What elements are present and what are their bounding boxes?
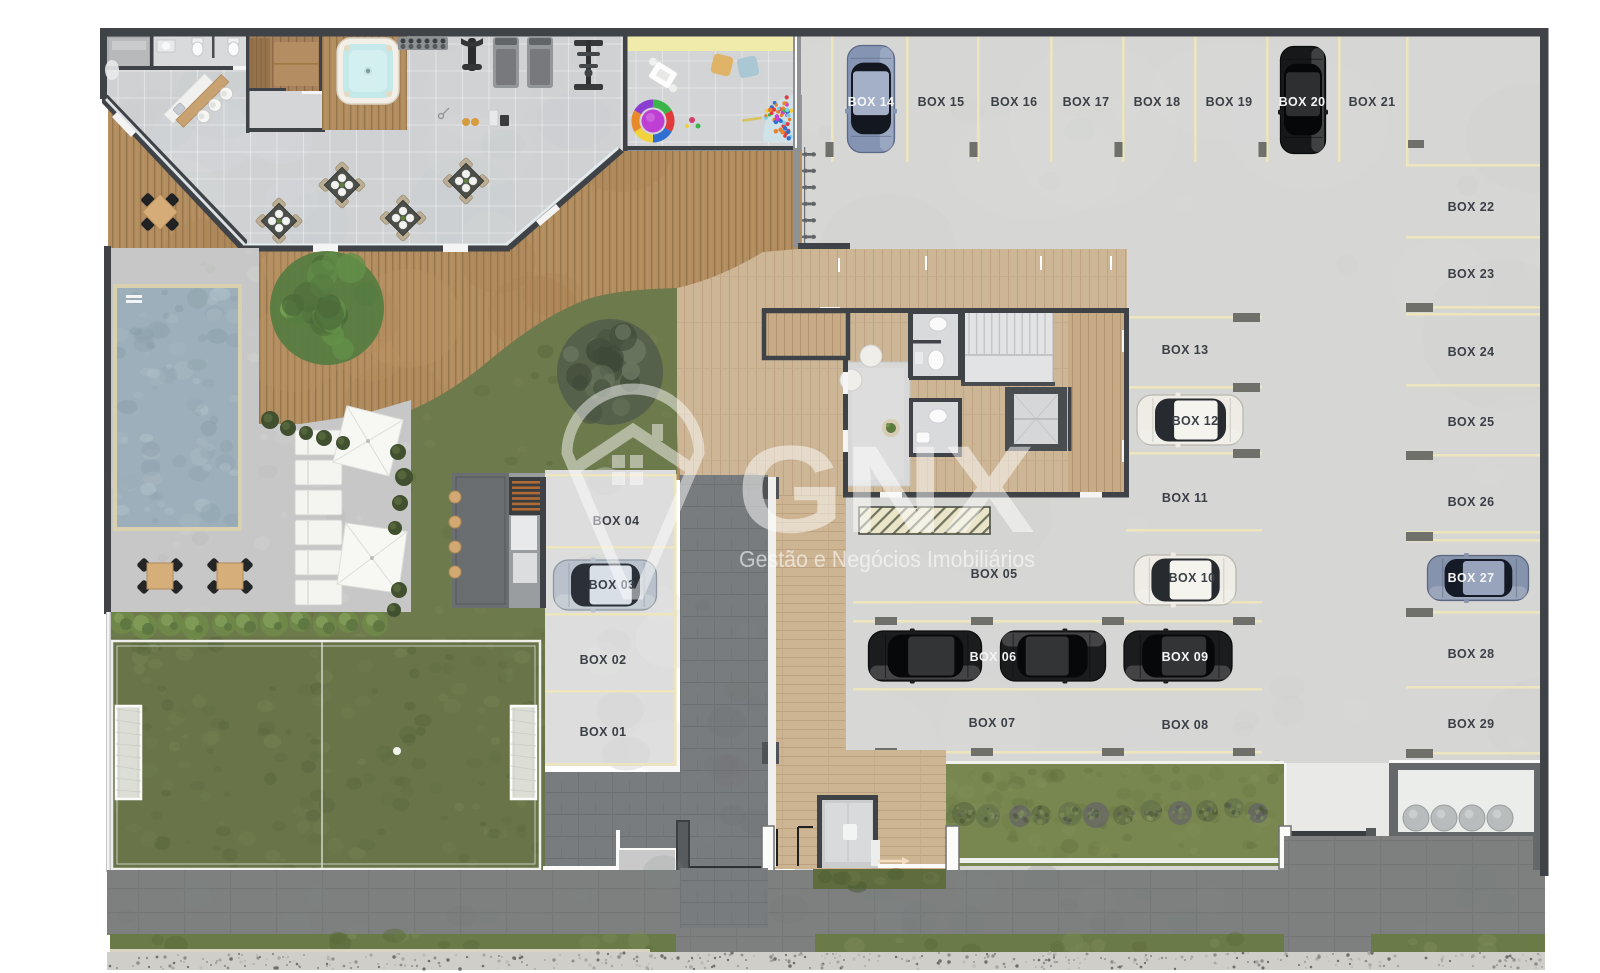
svg-text:BOX 29: BOX 29 bbox=[1448, 717, 1495, 731]
svg-text:Gestão e Negócios Imobiliários: Gestão e Negócios Imobiliários bbox=[739, 546, 1035, 572]
svg-text:BOX 08: BOX 08 bbox=[1162, 718, 1209, 732]
svg-text:BOX 27: BOX 27 bbox=[1448, 571, 1495, 585]
svg-text:BOX 01: BOX 01 bbox=[580, 725, 627, 739]
svg-text:BOX 21: BOX 21 bbox=[1349, 95, 1396, 109]
svg-text:BOX 20: BOX 20 bbox=[1279, 95, 1326, 109]
svg-text:BOX 18: BOX 18 bbox=[1134, 95, 1181, 109]
svg-text:BOX 24: BOX 24 bbox=[1448, 345, 1495, 359]
svg-text:BOX 06: BOX 06 bbox=[970, 650, 1017, 664]
svg-text:BOX 10: BOX 10 bbox=[1169, 571, 1216, 585]
svg-text:BOX 09: BOX 09 bbox=[1162, 650, 1209, 664]
svg-text:BOX 11: BOX 11 bbox=[1162, 491, 1208, 505]
svg-text:BOX 22: BOX 22 bbox=[1448, 200, 1495, 214]
svg-text:BOX 17: BOX 17 bbox=[1063, 95, 1110, 109]
svg-text:BOX 25: BOX 25 bbox=[1448, 415, 1495, 429]
svg-text:BOX 16: BOX 16 bbox=[991, 95, 1038, 109]
svg-text:BOX 23: BOX 23 bbox=[1448, 267, 1495, 281]
svg-text:GNX: GNX bbox=[737, 421, 1035, 559]
svg-text:BOX 28: BOX 28 bbox=[1448, 647, 1495, 661]
svg-text:BOX 02: BOX 02 bbox=[580, 653, 627, 667]
svg-text:BOX 12: BOX 12 bbox=[1172, 414, 1219, 428]
svg-text:BOX 07: BOX 07 bbox=[969, 716, 1016, 730]
svg-text:BOX 26: BOX 26 bbox=[1448, 495, 1495, 509]
svg-text:BOX 15: BOX 15 bbox=[918, 95, 965, 109]
svg-text:BOX 14: BOX 14 bbox=[848, 95, 895, 109]
svg-text:BOX 19: BOX 19 bbox=[1206, 95, 1253, 109]
svg-text:BOX 13: BOX 13 bbox=[1162, 343, 1209, 357]
